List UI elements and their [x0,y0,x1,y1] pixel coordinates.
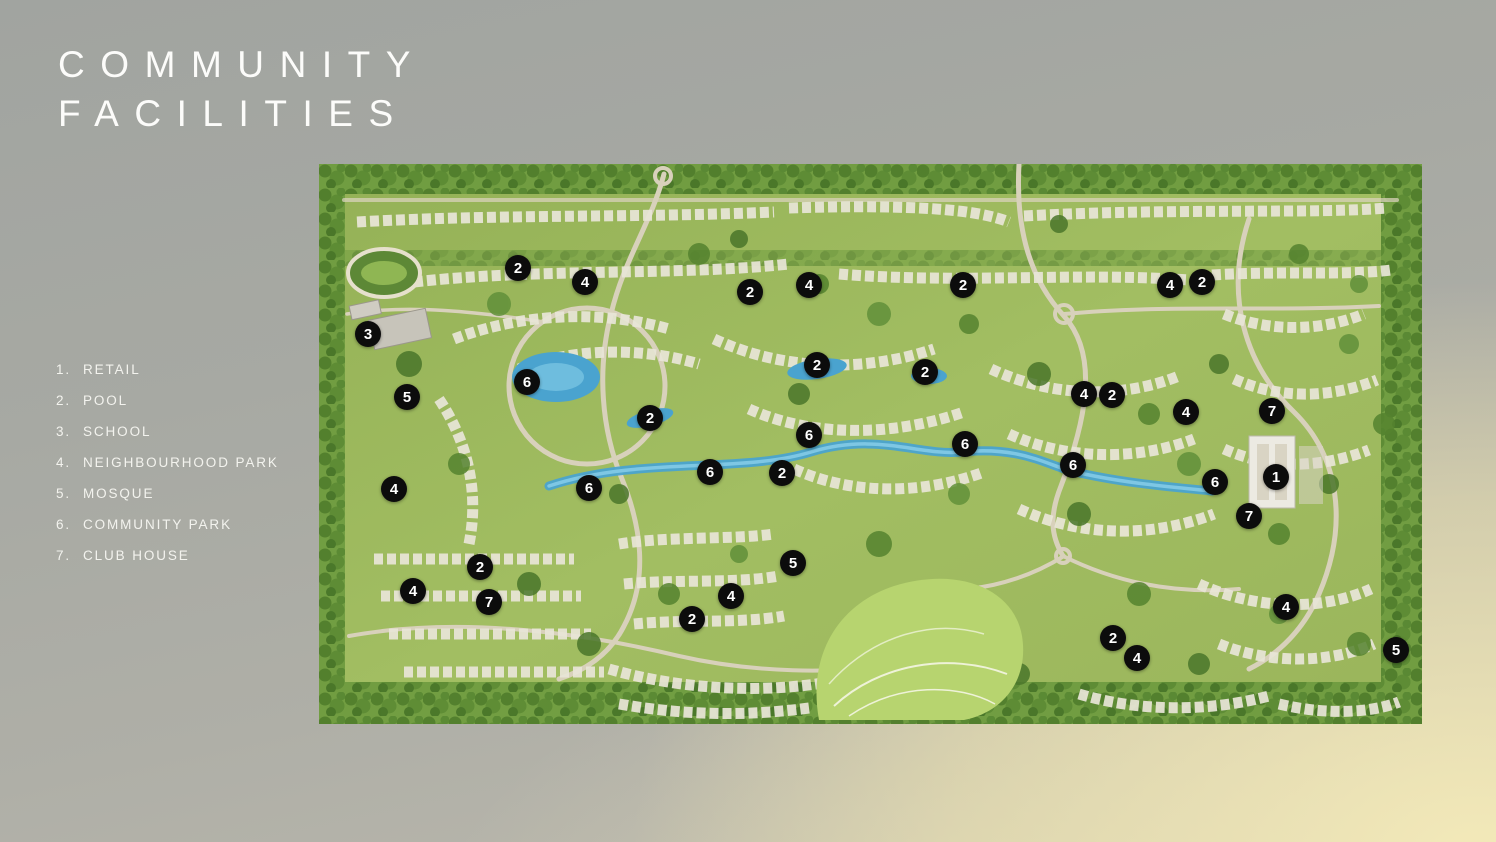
legend-item-7: 7.CLUB HOUSE [56,540,279,571]
map-marker-4[interactable]: 4 [1273,594,1299,620]
title-line-1: COMMUNITY [58,40,426,89]
map-marker-2[interactable]: 2 [505,255,531,281]
map-marker-7[interactable]: 7 [1259,398,1285,424]
map-marker-2[interactable]: 2 [1189,269,1215,295]
legend-item-number: 3. [56,424,74,439]
map-marker-1[interactable]: 1 [1263,464,1289,490]
map-marker-2[interactable]: 2 [804,352,830,378]
map-marker-6[interactable]: 6 [514,369,540,395]
map-marker-2[interactable]: 2 [679,606,705,632]
legend-item-label: MOSQUE [83,486,154,501]
legend-item-number: 4. [56,455,74,470]
masterplan-map: 2424242322642574266662166475244742254 [319,164,1422,724]
map-marker-4[interactable]: 4 [1173,399,1199,425]
map-marker-2[interactable]: 2 [737,279,763,305]
map-marker-5[interactable]: 5 [780,550,806,576]
facilities-legend: 1.RETAIL2.POOL3.SCHOOL4.NEIGHBOURHOOD PA… [56,354,279,571]
title-line-2: FACILITIES [58,89,426,138]
legend-item-number: 6. [56,517,74,532]
legend-item-number: 5. [56,486,74,501]
legend-item-number: 2. [56,393,74,408]
map-marker-5[interactable]: 5 [1383,637,1409,663]
map-marker-6[interactable]: 6 [1060,452,1086,478]
legend-item-number: 1. [56,362,74,377]
legend-item-label: SCHOOL [83,424,151,439]
legend-item-3: 3.SCHOOL [56,416,279,447]
map-marker-2[interactable]: 2 [1099,382,1125,408]
legend-item-1: 1.RETAIL [56,354,279,385]
map-marker-7[interactable]: 7 [476,589,502,615]
map-marker-7[interactable]: 7 [1236,503,1262,529]
map-marker-4[interactable]: 4 [1157,272,1183,298]
legend-item-label: CLUB HOUSE [83,548,190,563]
map-marker-2[interactable]: 2 [769,460,795,486]
map-marker-4[interactable]: 4 [718,583,744,609]
masterplan-aerial-art [319,164,1422,724]
legend-item-label: COMMUNITY PARK [83,517,232,532]
map-marker-2[interactable]: 2 [467,554,493,580]
legend-item-label: POOL [83,393,128,408]
map-marker-6[interactable]: 6 [1202,469,1228,495]
legend-item-label: RETAIL [83,362,141,377]
legend-item-label: NEIGHBOURHOOD PARK [83,455,279,470]
map-marker-6[interactable]: 6 [576,475,602,501]
legend-item-6: 6.COMMUNITY PARK [56,509,279,540]
map-marker-2[interactable]: 2 [950,272,976,298]
map-marker-4[interactable]: 4 [572,269,598,295]
map-marker-4[interactable]: 4 [796,272,822,298]
map-marker-3[interactable]: 3 [355,321,381,347]
map-marker-4[interactable]: 4 [381,476,407,502]
map-marker-6[interactable]: 6 [952,431,978,457]
page-title: COMMUNITY FACILITIES [58,40,426,138]
map-marker-4[interactable]: 4 [1071,381,1097,407]
slide-root: COMMUNITY FACILITIES 1.RETAIL2.POOL3.SCH… [0,0,1496,842]
map-marker-2[interactable]: 2 [1100,625,1126,651]
map-marker-2[interactable]: 2 [637,405,663,431]
map-marker-5[interactable]: 5 [394,384,420,410]
legend-item-5: 5.MOSQUE [56,478,279,509]
legend-item-4: 4.NEIGHBOURHOOD PARK [56,447,279,478]
map-marker-4[interactable]: 4 [1124,645,1150,671]
legend-item-number: 7. [56,548,74,563]
legend-item-2: 2.POOL [56,385,279,416]
map-marker-6[interactable]: 6 [697,459,723,485]
map-marker-4[interactable]: 4 [400,578,426,604]
map-marker-6[interactable]: 6 [796,422,822,448]
map-marker-2[interactable]: 2 [912,359,938,385]
